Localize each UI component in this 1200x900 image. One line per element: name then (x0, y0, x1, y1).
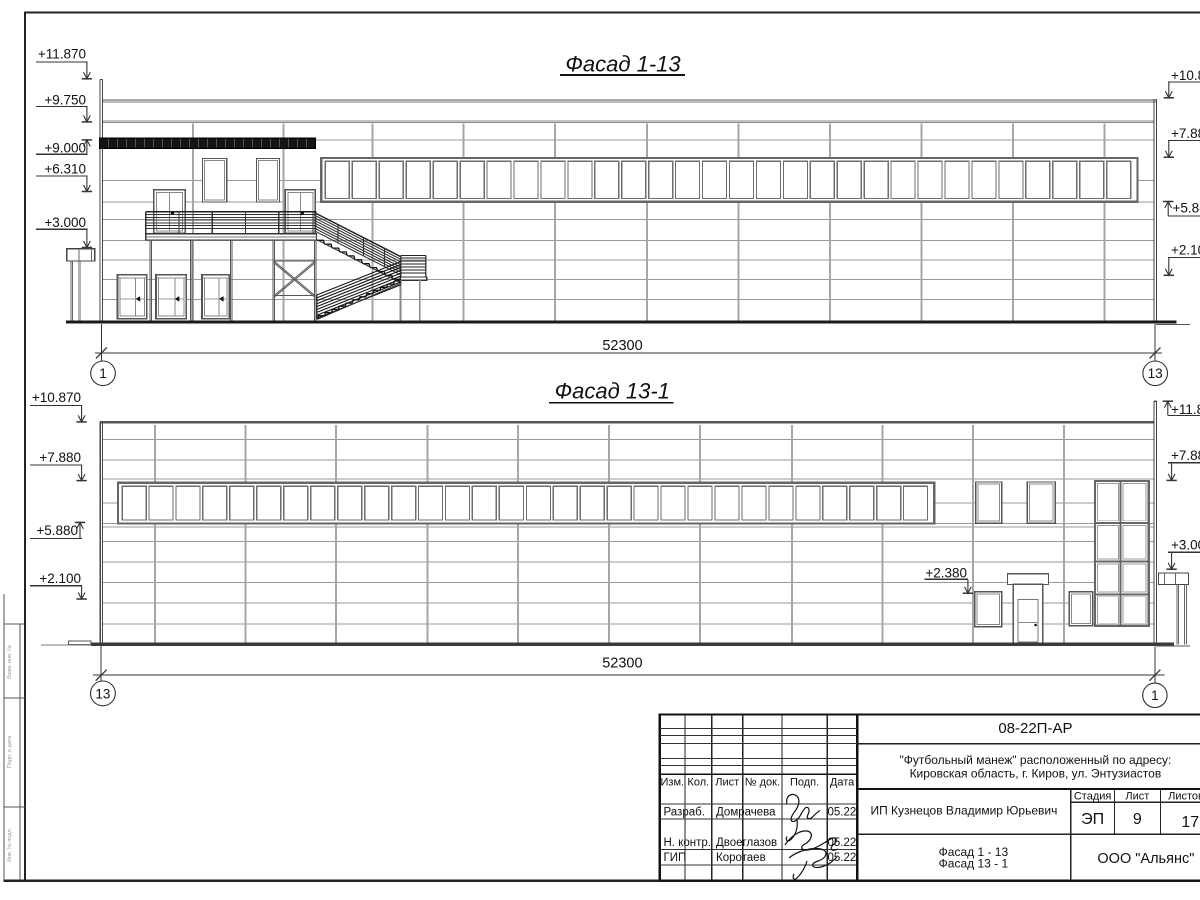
svg-text:13: 13 (1148, 366, 1163, 381)
svg-text:ООО "Альянс": ООО "Альянс" (1097, 851, 1194, 867)
svg-text:Домрачева: Домрачева (716, 807, 776, 819)
svg-text:+2.380: +2.380 (925, 566, 967, 581)
svg-text:+11.870: +11.870 (38, 47, 86, 62)
svg-text:Лист: Лист (1125, 791, 1149, 803)
svg-text:ГИП: ГИП (664, 852, 687, 864)
svg-text:+10.870: +10.870 (1171, 68, 1200, 83)
svg-text:ИП Кузнецов Владимир Юрьевич: ИП Кузнецов Владимир Юрьевич (870, 804, 1057, 818)
svg-text:13: 13 (95, 686, 110, 701)
svg-text:+5.880: +5.880 (1173, 201, 1200, 216)
svg-text:+2.100: +2.100 (39, 571, 81, 586)
svg-text:05.22: 05.22 (828, 807, 857, 819)
svg-text:08-22П-АР: 08-22П-АР (998, 720, 1072, 737)
svg-text:+10.870: +10.870 (32, 390, 81, 405)
svg-text:+5.880: +5.880 (36, 523, 78, 538)
svg-text:+11.870: +11.870 (1171, 402, 1200, 417)
svg-text:52300: 52300 (602, 338, 642, 354)
svg-text:+3.000: +3.000 (44, 215, 86, 230)
svg-text:ЭП: ЭП (1081, 811, 1104, 828)
svg-text:+9.750: +9.750 (44, 92, 86, 107)
svg-text:Разраб.: Разраб. (664, 807, 705, 819)
svg-text:17: 17 (1181, 814, 1199, 831)
svg-text:+7.880: +7.880 (1171, 448, 1200, 463)
svg-text:1: 1 (99, 366, 107, 381)
svg-text:+2.100: +2.100 (1171, 243, 1200, 258)
svg-text:"Футбольный манеж" расположенн: "Футбольный манеж" расположенный по адре… (899, 753, 1171, 767)
svg-text:Изм.: Изм. (661, 776, 685, 788)
svg-text:Фасад 1-13: Фасад 1-13 (565, 52, 681, 77)
svg-text:Листов: Листов (1168, 791, 1200, 803)
svg-text:Кировская область, г. Киров, у: Кировская область, г. Киров, ул. Энтузиа… (910, 767, 1162, 781)
svg-text:Стадия: Стадия (1074, 791, 1112, 803)
svg-text:+9.000: +9.000 (44, 140, 86, 155)
svg-text:+6.310: +6.310 (44, 162, 86, 177)
svg-text:Дата: Дата (830, 776, 855, 788)
svg-text:Взам. инв. №: Взам. инв. № (7, 645, 13, 679)
svg-text:Подп.: Подп. (790, 776, 819, 788)
svg-text:Кол.: Кол. (687, 776, 709, 788)
svg-text:9: 9 (1133, 811, 1142, 828)
svg-text:+7.880: +7.880 (39, 450, 81, 465)
svg-text:Фасад 13-1: Фасад 13-1 (555, 378, 670, 403)
svg-text:Инв. № подл.: Инв. № подл. (7, 827, 13, 862)
svg-text:52300: 52300 (602, 655, 642, 671)
svg-text:Фасад 13 - 1: Фасад 13 - 1 (939, 857, 1009, 871)
svg-text:Лист: Лист (715, 776, 739, 788)
svg-text:№ док.: № док. (745, 776, 780, 788)
svg-text:+3.000: +3.000 (1171, 537, 1200, 552)
svg-text:1: 1 (1151, 688, 1159, 703)
svg-text:+7.880: +7.880 (1171, 126, 1200, 141)
svg-text:Двоеглазов: Двоеглазов (716, 837, 777, 849)
svg-text:Н. контр.: Н. контр. (664, 837, 711, 849)
svg-text:Подп. и дата: Подп. и дата (7, 735, 13, 768)
svg-text:Коротаев: Коротаев (716, 852, 766, 864)
